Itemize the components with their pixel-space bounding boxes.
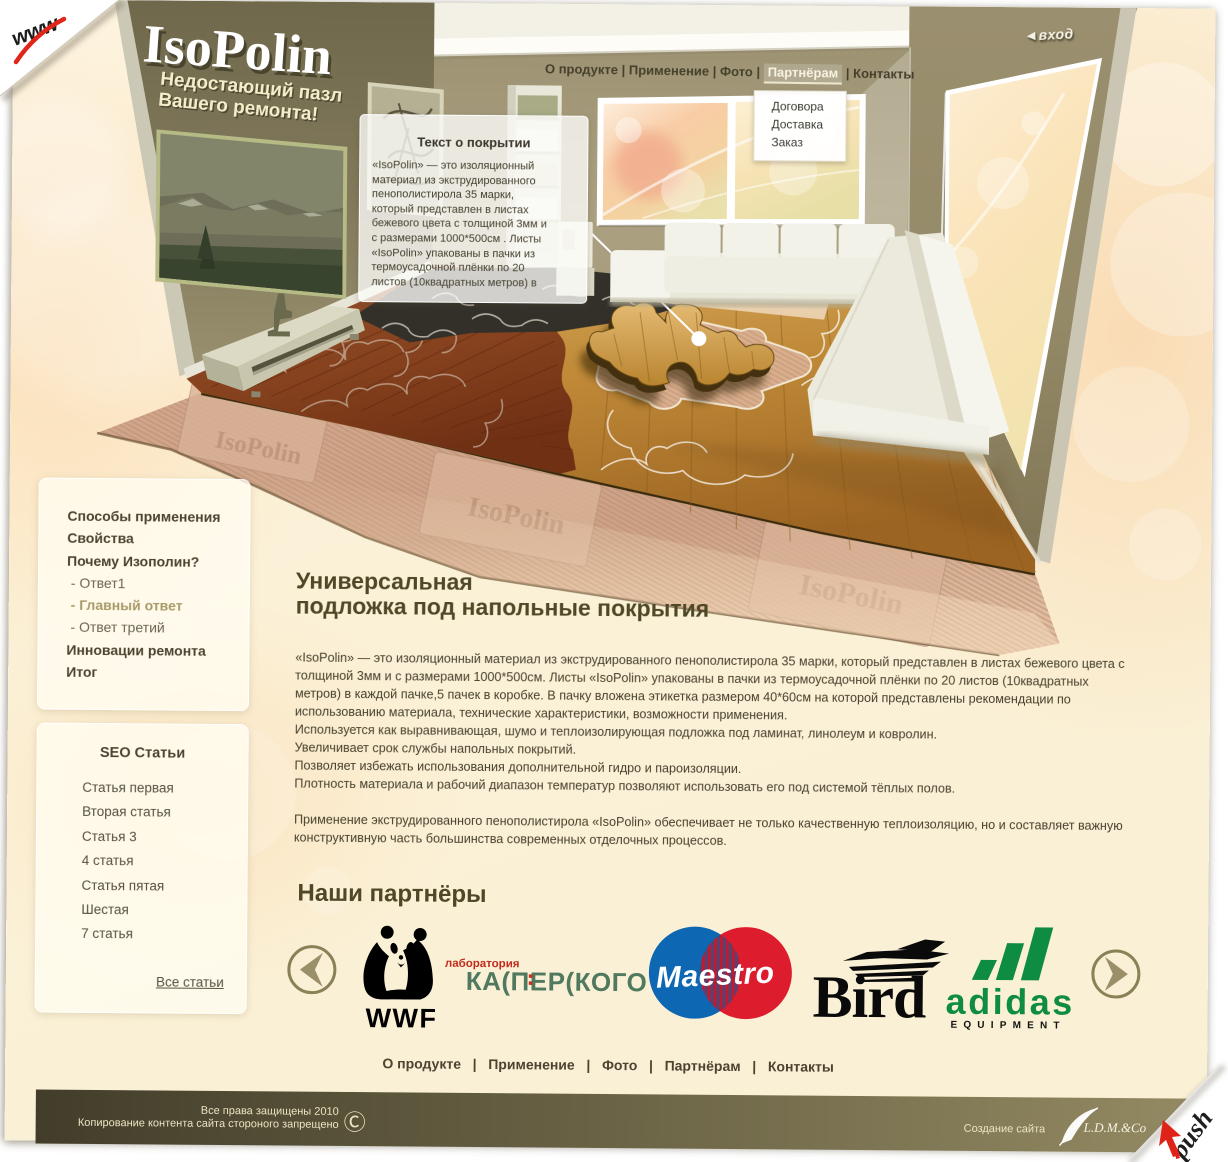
svg-text:Maestro: Maestro [655, 956, 775, 994]
svg-text:WWF: WWF [365, 1003, 437, 1034]
svg-text:КА(ПЕР(КОГО: КА(ПЕР(КОГО [466, 966, 648, 997]
svg-text:EQUIPMENT: EQUIPMENT [950, 1020, 1065, 1032]
svg-text:Bird: Bird [812, 964, 926, 1031]
svg-text:adidas: adidas [945, 981, 1074, 1023]
